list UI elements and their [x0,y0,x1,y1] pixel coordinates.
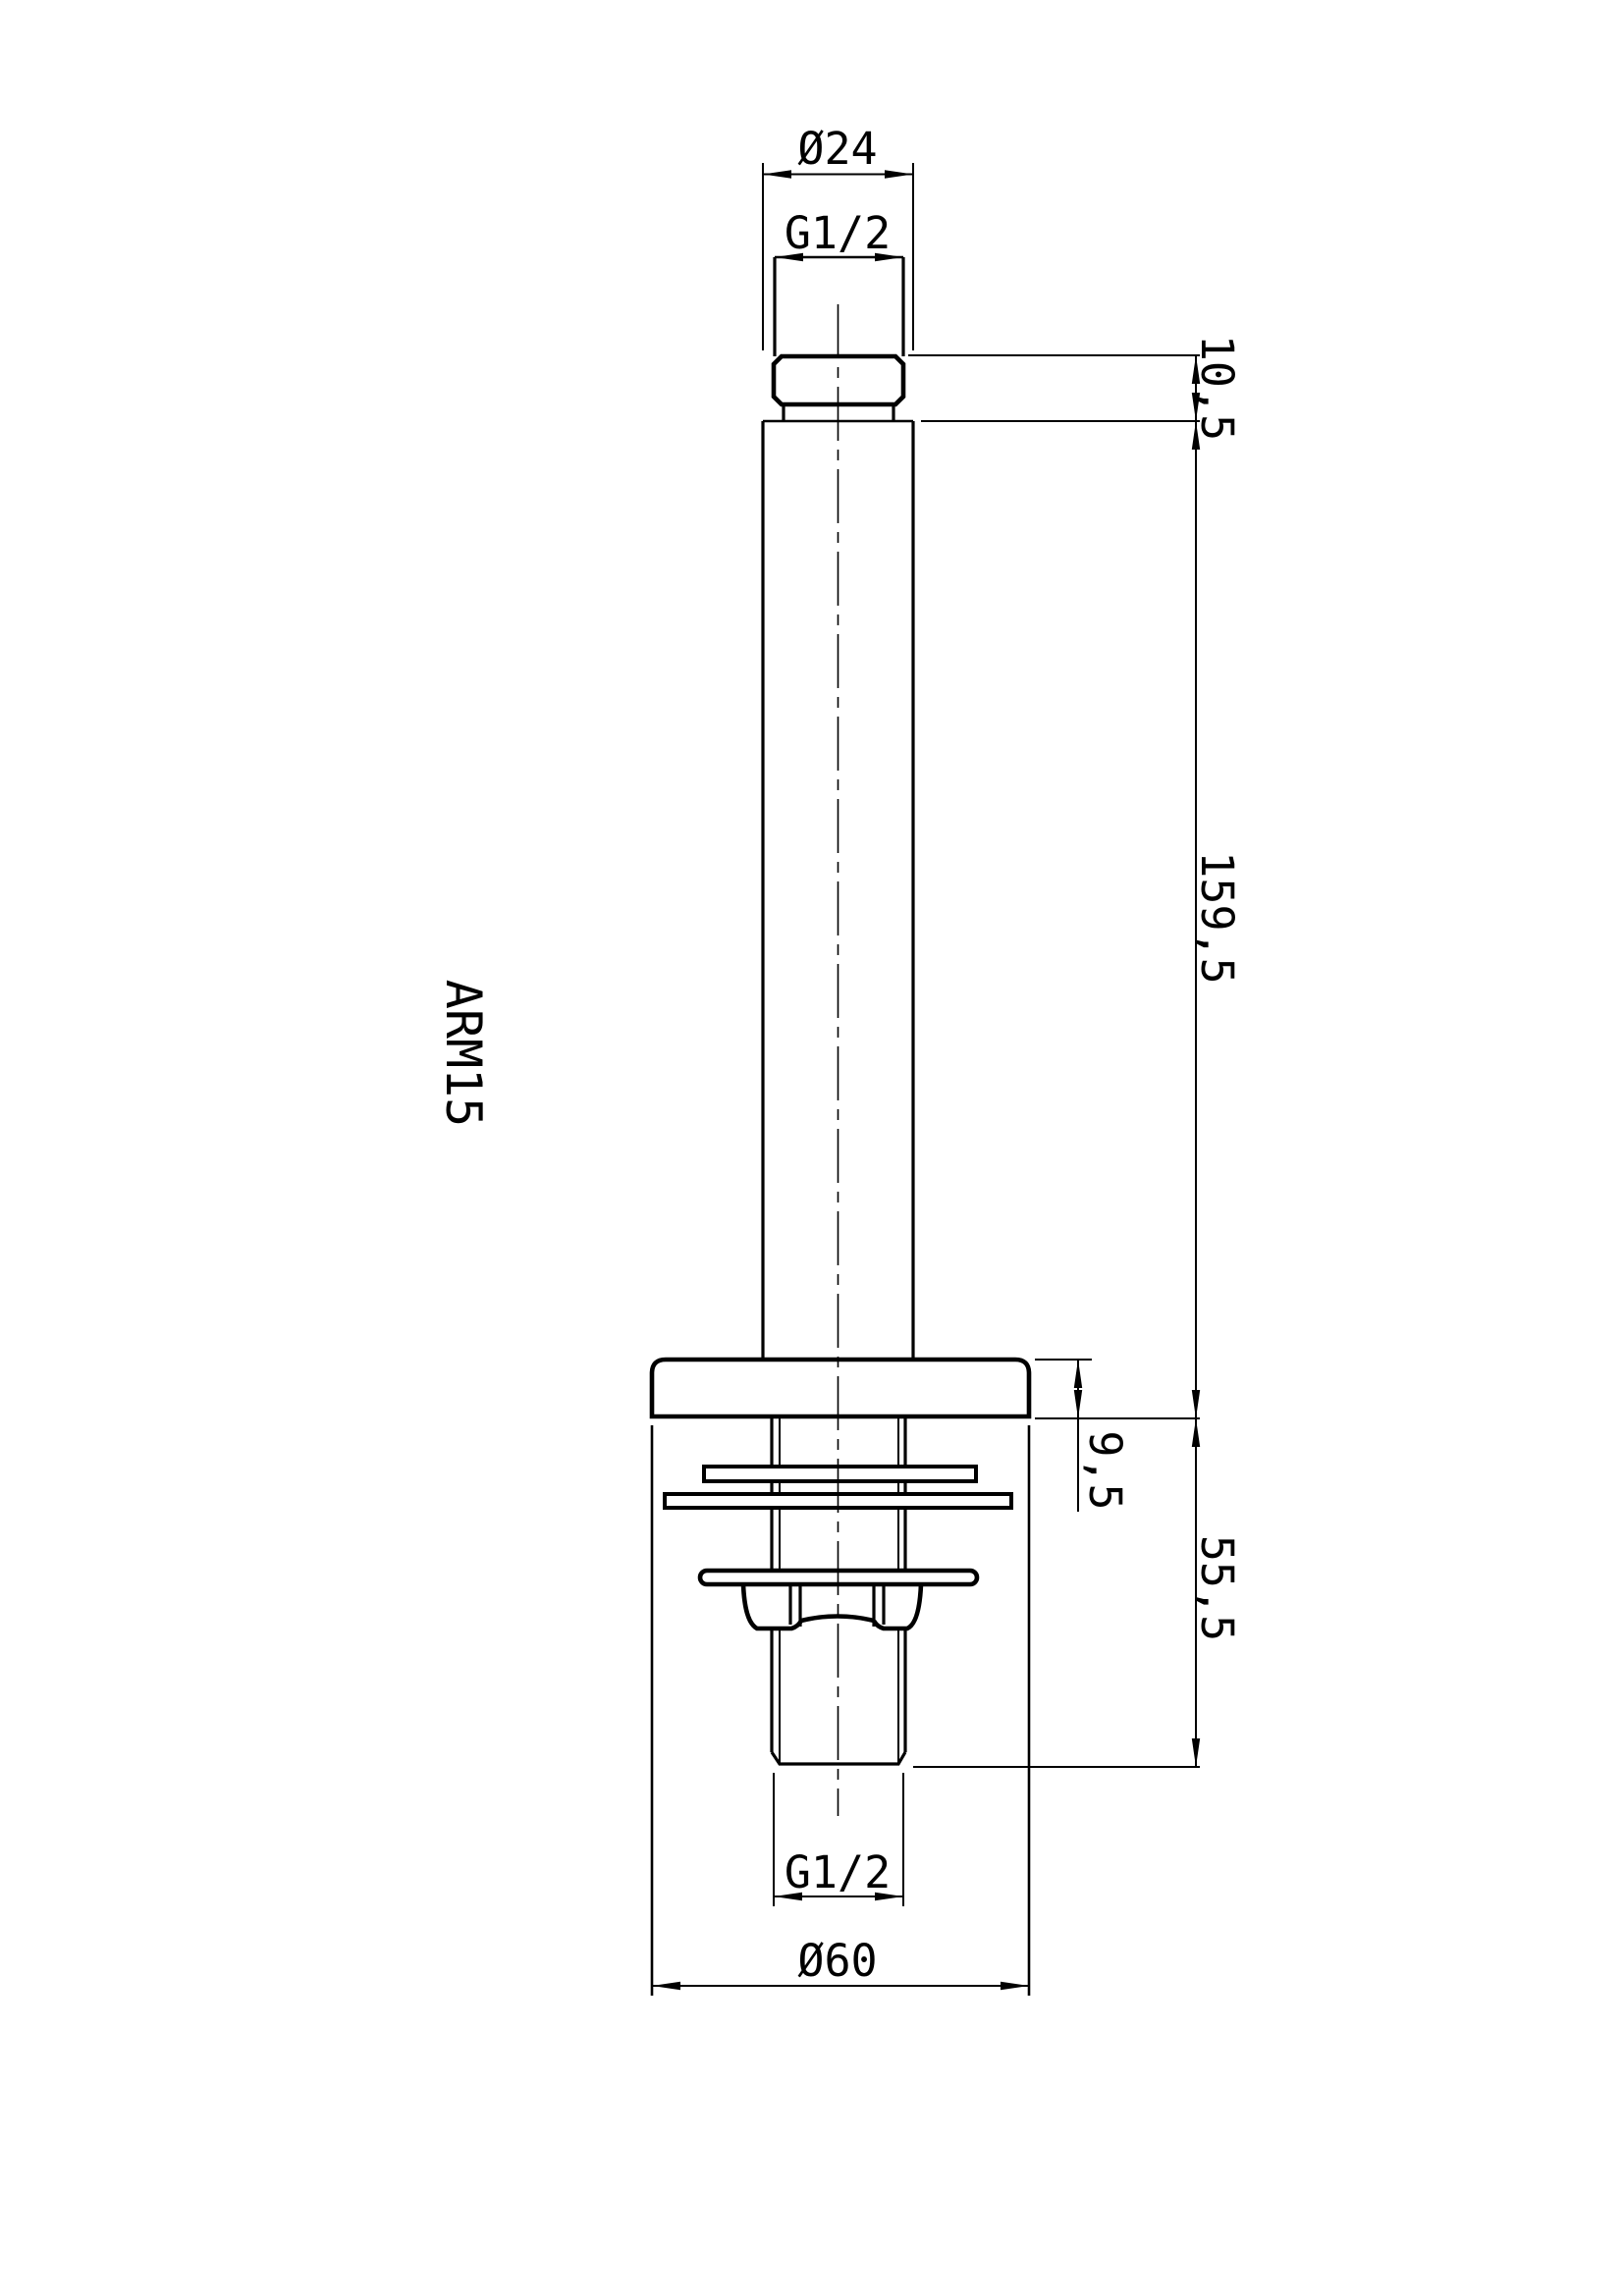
flange-diameter-value: Ø60 [797,1935,877,1987]
flange-thickness-value: 9,5 [1079,1430,1131,1510]
head-height-value: 10,5 [1191,335,1243,441]
technical-drawing: Ø24 G1/2 10,5 159,5 9,5 [0,0,1624,2296]
top-thread-dimension: G1/2 [775,207,903,259]
top-thread [775,257,903,356]
arm-length-dimension: 159,5 [1191,421,1243,1418]
washer-small [704,1467,976,1481]
flange-diameter-dimension: Ø60 [652,1935,1029,1987]
flange [652,1360,1029,1416]
arm-length-value: 159,5 [1191,851,1243,984]
bottom-thread-value: G1/2 [785,1846,891,1898]
top-diameter-value: Ø24 [797,123,877,175]
hex-nut [743,1584,921,1629]
drawing-page: Ø24 G1/2 10,5 159,5 9,5 [0,0,1624,2296]
flange-thickness-dimension: 9,5 [1035,1360,1200,1512]
nut-right-facet [874,1584,921,1629]
nut-center-facet [801,1617,874,1622]
top-thread-value: G1/2 [785,207,891,259]
shower-arm-outline [652,257,1029,1996]
part-label: ARM15 [435,980,492,1128]
nut-left-facet [743,1584,801,1629]
lower-length-value: 55,5 [1191,1535,1243,1641]
head-height-dimension: 10,5 [908,335,1243,441]
